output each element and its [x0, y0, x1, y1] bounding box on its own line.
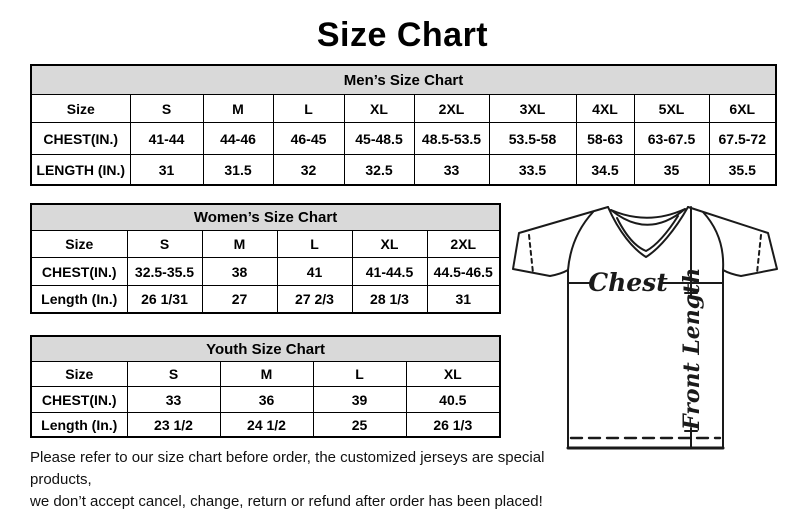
table-cell: 41-44.5	[352, 258, 427, 286]
table-cell: 33	[127, 387, 220, 413]
size-header: L	[277, 231, 352, 258]
disclaimer-line-2: we don’t accept cancel, change, return o…	[30, 491, 560, 513]
table-cell: 41	[277, 258, 352, 286]
size-header: 2XL	[427, 231, 500, 258]
row-label-size: Size	[31, 231, 127, 258]
size-header: L	[313, 362, 406, 387]
table-cell: 36	[220, 387, 313, 413]
row-label-size: Size	[31, 362, 127, 387]
table-cell: 44-46	[203, 123, 273, 155]
table-row: Size S M L XL	[31, 362, 500, 387]
table-cell: 26 1/3	[406, 413, 500, 438]
table-cell: 35	[634, 155, 709, 186]
womens-size-table: Women’s Size Chart Size S M L XL 2XL CHE…	[30, 203, 501, 314]
table-cell: 58-63	[576, 123, 634, 155]
shirt-collar-inner-v	[617, 216, 678, 251]
size-header: XL	[344, 95, 414, 123]
table-cell: 67.5-72	[709, 123, 776, 155]
disclaimer-text: Please refer to our size chart before or…	[30, 447, 560, 513]
disclaimer-line-1: Please refer to our size chart before or…	[30, 447, 560, 491]
row-label-size: Size	[31, 95, 130, 123]
table-cell: 44.5-46.5	[427, 258, 500, 286]
shirt-left-cuff-dashed	[529, 235, 533, 273]
mens-size-table: Men’s Size Chart Size S M L XL 2XL 3XL 4…	[30, 64, 777, 186]
table-cell: 32	[273, 155, 344, 186]
table-cell: 31.5	[203, 155, 273, 186]
table-row: CHEST(IN.) 41-44 44-46 46-45 45-48.5 48.…	[31, 123, 776, 155]
table-row: Length (In.) 26 1/31 27 27 2/3 28 1/3 31	[31, 286, 500, 314]
size-header: 3XL	[489, 95, 576, 123]
page-title: Size Chart	[0, 16, 805, 55]
table-cell: 24 1/2	[220, 413, 313, 438]
table-cell: 39	[313, 387, 406, 413]
table-cell: 41-44	[130, 123, 203, 155]
table-row: LENGTH (IN.) 31 31.5 32 32.5 33 33.5 34.…	[31, 155, 776, 186]
size-header: 5XL	[634, 95, 709, 123]
table-cell: 40.5	[406, 387, 500, 413]
size-header: M	[203, 95, 273, 123]
shirt-right-cuff-dashed	[757, 235, 761, 273]
shirt-left-sleeve-seam	[568, 212, 593, 270]
table-cell: 33	[414, 155, 489, 186]
size-header: 2XL	[414, 95, 489, 123]
table-row: Size S M L XL 2XL	[31, 231, 500, 258]
table-cell: 46-45	[273, 123, 344, 155]
chest-label: Chest	[588, 268, 668, 297]
table-cell: 63-67.5	[634, 123, 709, 155]
table-cell: 34.5	[576, 155, 634, 186]
row-label-length: Length (In.)	[31, 413, 127, 438]
womens-table-title: Women’s Size Chart	[31, 204, 500, 231]
size-header: 4XL	[576, 95, 634, 123]
size-header: S	[127, 362, 220, 387]
table-cell: 31	[427, 286, 500, 314]
size-header: S	[130, 95, 203, 123]
table-cell: 48.5-53.5	[414, 123, 489, 155]
mens-table-title: Men’s Size Chart	[31, 65, 776, 95]
youth-table-title: Youth Size Chart	[31, 336, 500, 362]
size-header: S	[127, 231, 202, 258]
front-length-label: Front Length	[679, 268, 705, 431]
table-row: CHEST(IN.) 32.5-35.5 38 41 41-44.5 44.5-…	[31, 258, 500, 286]
table-cell: 31	[130, 155, 203, 186]
table-cell: 26 1/31	[127, 286, 202, 314]
shirt-right-sleeve-seam	[703, 212, 723, 270]
table-cell: 35.5	[709, 155, 776, 186]
row-label-length: LENGTH (IN.)	[31, 155, 130, 186]
table-cell: 53.5-58	[489, 123, 576, 155]
row-label-chest: CHEST(IN.)	[31, 258, 127, 286]
table-row: Size S M L XL 2XL 3XL 4XL 5XL 6XL	[31, 95, 776, 123]
row-label-chest: CHEST(IN.)	[31, 123, 130, 155]
table-cell: 27	[202, 286, 277, 314]
table-cell: 23 1/2	[127, 413, 220, 438]
table-cell: 27 2/3	[277, 286, 352, 314]
size-header: L	[273, 95, 344, 123]
table-row: Length (In.) 23 1/2 24 1/2 25 26 1/3	[31, 413, 500, 438]
size-chart-page: { "page": { "title": "Size Chart", "back…	[0, 0, 805, 512]
table-cell: 33.5	[489, 155, 576, 186]
row-label-chest: CHEST(IN.)	[31, 387, 127, 413]
table-cell: 32.5	[344, 155, 414, 186]
table-cell: 25	[313, 413, 406, 438]
size-header: XL	[406, 362, 500, 387]
row-label-length: Length (In.)	[31, 286, 127, 314]
shirt-left-outline	[513, 207, 608, 448]
table-cell: 38	[202, 258, 277, 286]
table-row: CHEST(IN.) 33 36 39 40.5	[31, 387, 500, 413]
table-cell: 28 1/3	[352, 286, 427, 314]
size-header: M	[202, 231, 277, 258]
youth-size-table: Youth Size Chart Size S M L XL CHEST(IN.…	[30, 335, 501, 438]
size-header: M	[220, 362, 313, 387]
table-cell: 45-48.5	[344, 123, 414, 155]
size-header: 6XL	[709, 95, 776, 123]
size-header: XL	[352, 231, 427, 258]
table-cell: 32.5-35.5	[127, 258, 202, 286]
